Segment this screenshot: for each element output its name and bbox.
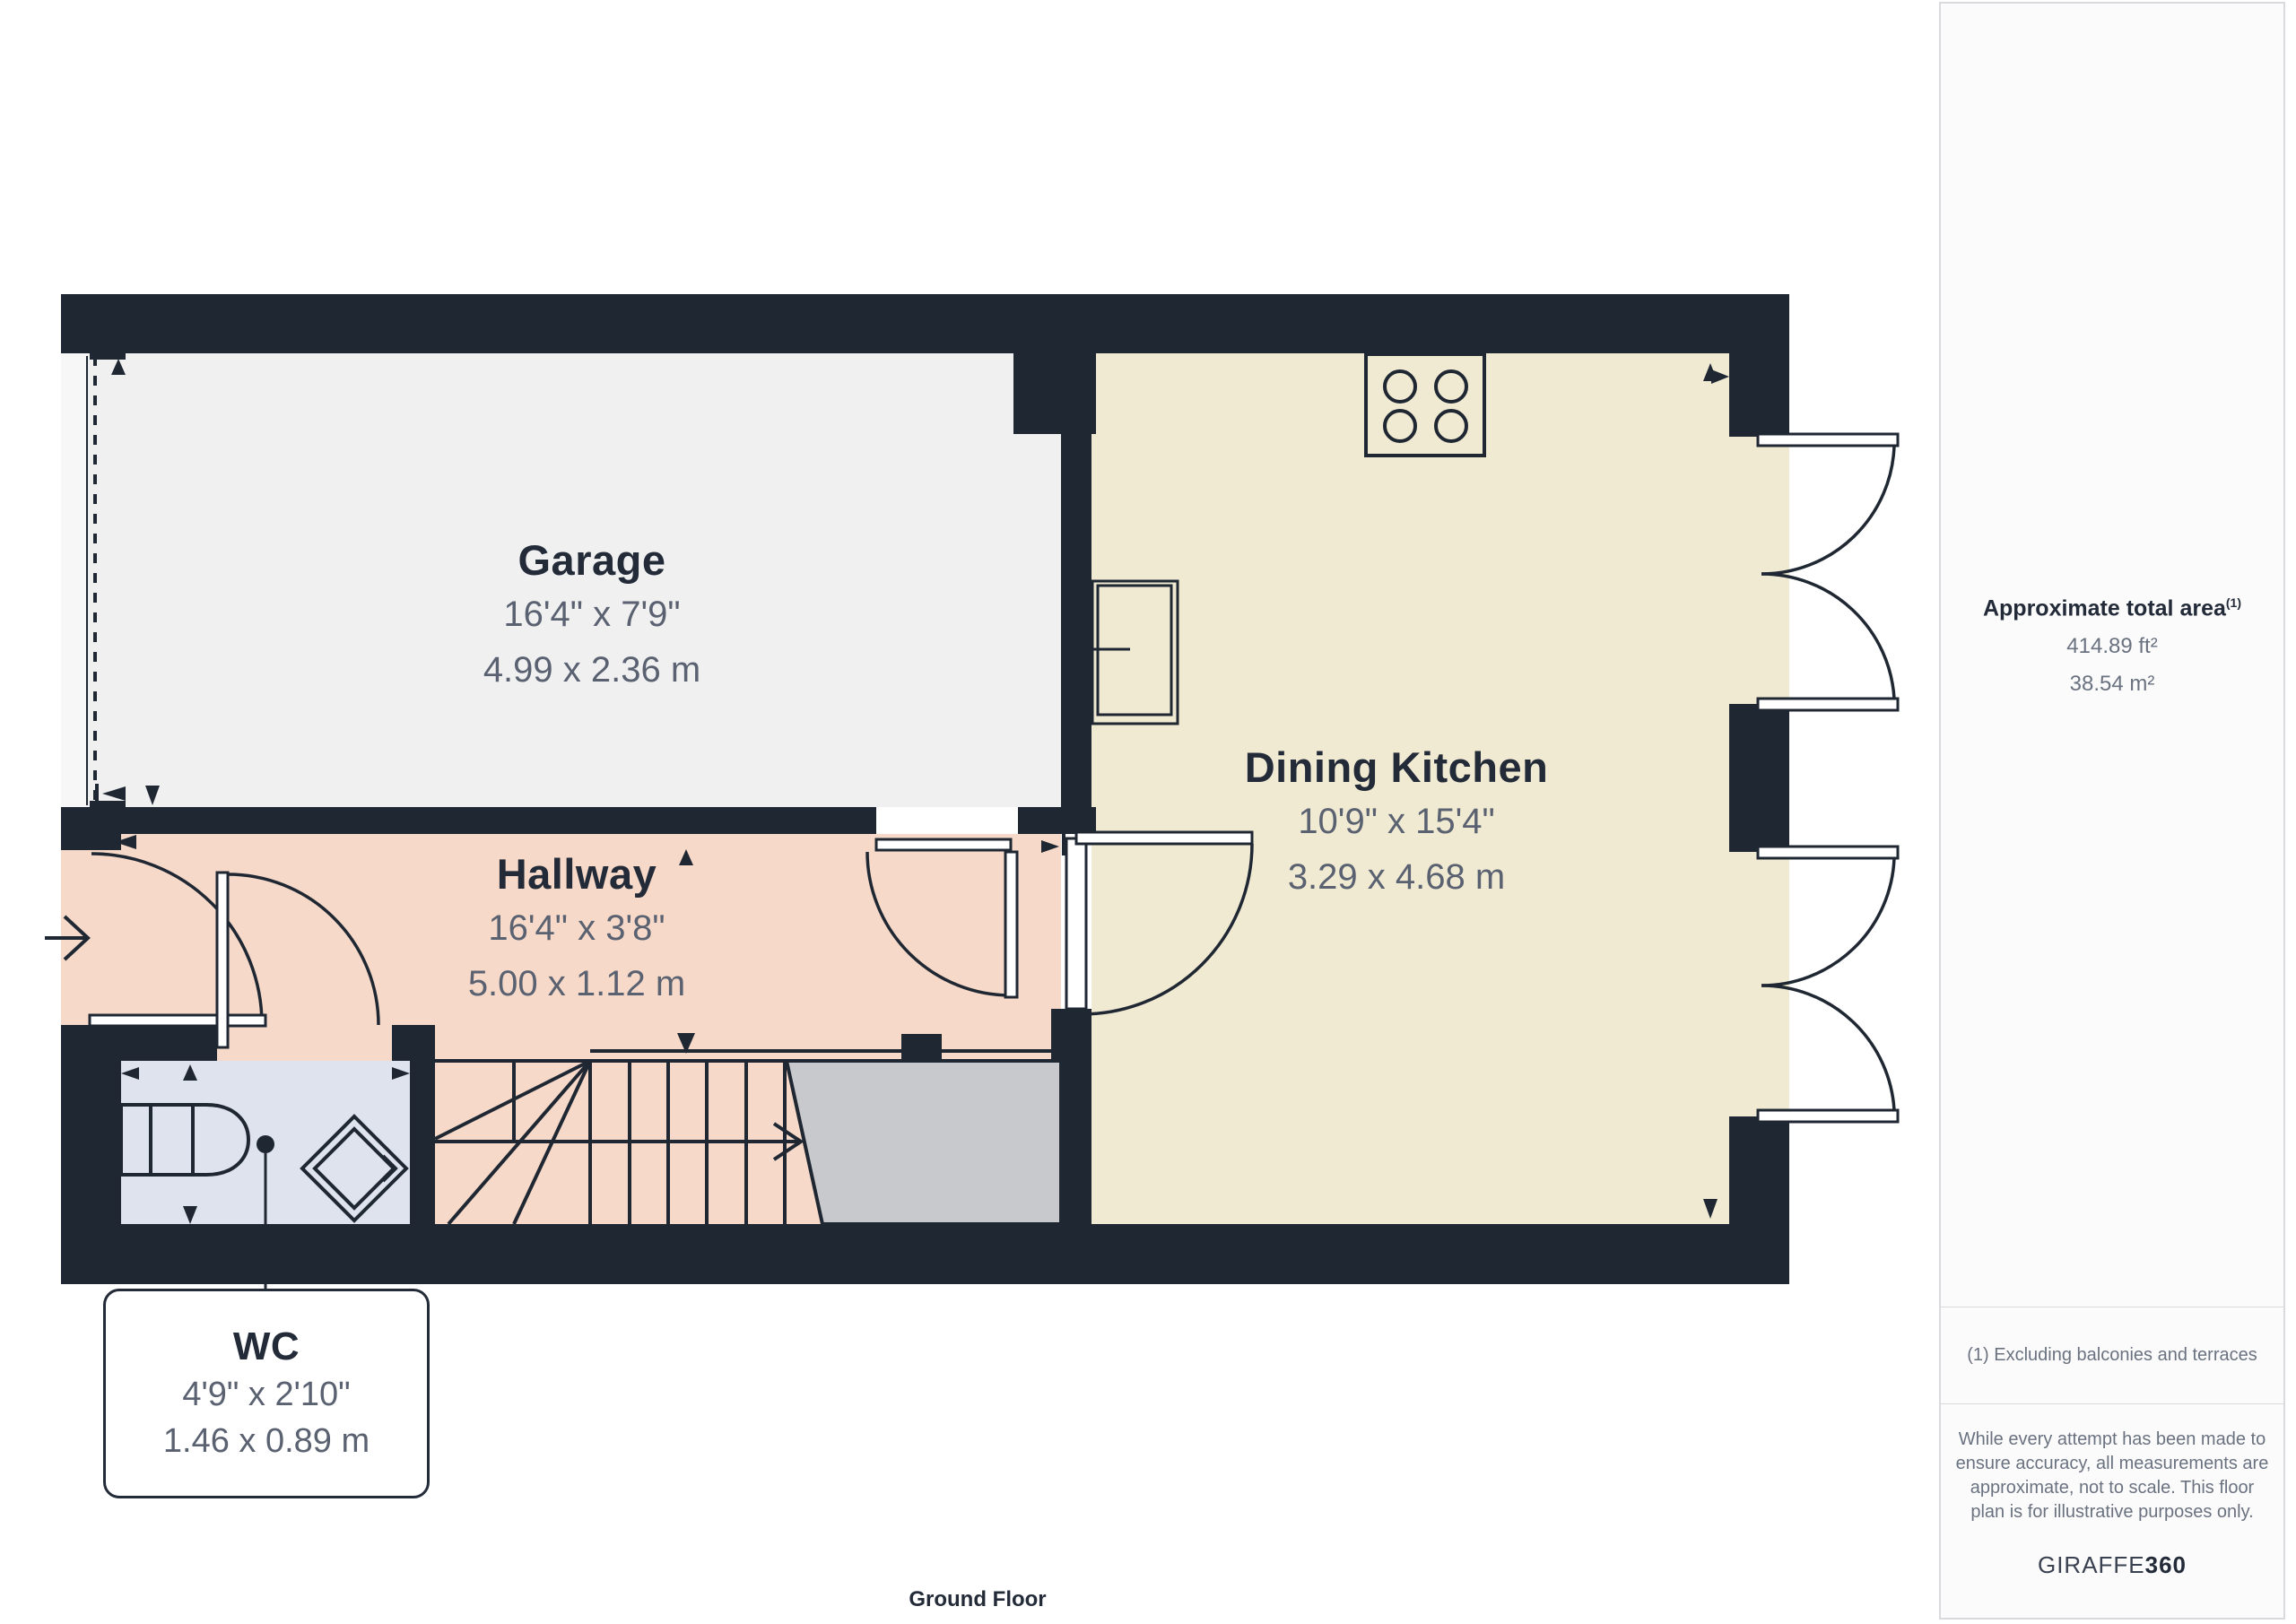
wc-title: WC xyxy=(233,1323,300,1371)
info-sidebar: Approximate total area(1) 414.89 ft² 38.… xyxy=(1939,2,2285,1620)
footnote-text: (1) Excluding balconies and terraces xyxy=(1967,1345,2257,1366)
stair-landing xyxy=(787,1061,1061,1224)
disclaimer-line: While every attempt has been made to xyxy=(1941,1428,2283,1452)
total-area-footnote-marker: (1) xyxy=(2226,595,2241,610)
wc-dim-imperial: 4'9" x 2'10" xyxy=(182,1371,350,1418)
room-garage xyxy=(88,353,1061,807)
wall-divider-upper xyxy=(1061,353,1091,832)
footnote-section: (1) Excluding balconies and terraces xyxy=(1941,1307,2283,1404)
room-dining-kitchen xyxy=(1091,353,1729,1224)
floor-name: Ground Floor xyxy=(909,1587,1046,1612)
disclaimer-line: plan is for illustrative purposes only. xyxy=(1941,1500,2283,1524)
wc-label-box: WC 4'9" x 2'10" 1.46 x 0.89 m xyxy=(103,1289,430,1498)
room-fills xyxy=(61,353,1789,1224)
wall-right-mid-block xyxy=(1729,704,1789,852)
wall-hall-wc-right xyxy=(392,1025,435,1061)
disclaimer-line: approximate, not to scale. This floor xyxy=(1941,1476,2283,1500)
total-area-ft: 414.89 ft² xyxy=(1941,634,2283,659)
giraffe360-logo: GIRAFFE360 xyxy=(1941,1551,2283,1579)
total-area-section: Approximate total area(1) 414.89 ft² 38.… xyxy=(1941,595,2283,697)
wall-garage-hall-left xyxy=(61,807,876,834)
disclaimer-section: While every attempt has been made to ens… xyxy=(1941,1403,2283,1579)
wall-wc-stairs xyxy=(410,1061,435,1224)
wall-right-upper-block xyxy=(1729,353,1789,437)
wall-left-wc xyxy=(61,1025,121,1284)
total-area-label: Approximate total area xyxy=(1983,595,2226,621)
total-area-m: 38.54 m² xyxy=(1941,672,2283,697)
brand-text: GIRAFFE xyxy=(2038,1551,2145,1578)
wall-divider-lower xyxy=(1061,1009,1091,1224)
brand-suffix: 360 xyxy=(2145,1551,2187,1578)
wall-hall-wc-left xyxy=(61,1025,217,1061)
disclaimer-line: ensure accuracy, all measurements are xyxy=(1941,1452,2283,1476)
garage-door-strip xyxy=(61,353,88,807)
wall-top xyxy=(61,294,1789,353)
wc-dim-metric: 1.46 x 0.89 m xyxy=(163,1418,370,1464)
total-area-heading: Approximate total area(1) xyxy=(1941,595,2283,621)
wall-stairs-stub xyxy=(901,1034,942,1061)
disclaimer-text: While every attempt has been made to ens… xyxy=(1941,1428,2283,1524)
wc-leader-dot xyxy=(257,1135,274,1153)
wall-bottom xyxy=(61,1224,1789,1284)
